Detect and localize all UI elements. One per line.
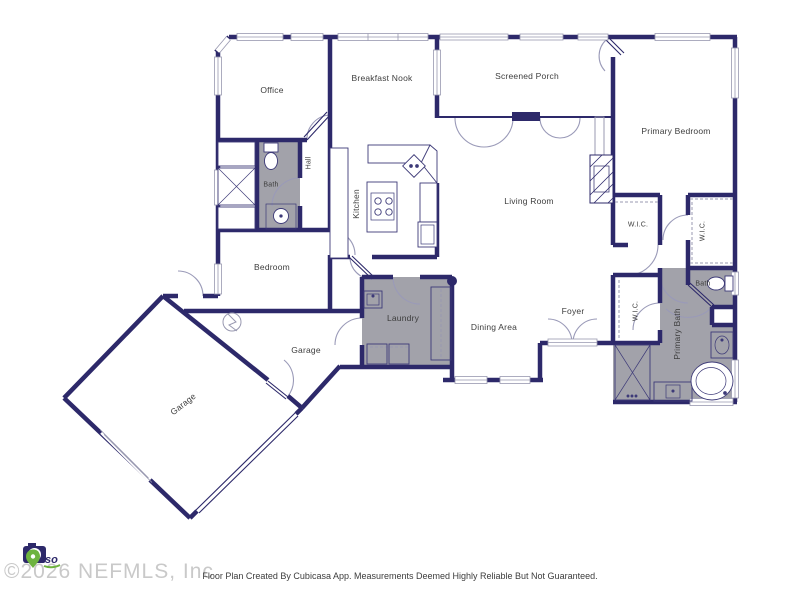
kitchen-island-icon xyxy=(367,182,397,232)
room-label-breakfast-nook: Breakfast Nook xyxy=(352,73,413,83)
room-label-garage-small: Garage xyxy=(291,345,321,355)
floorplan-page: Office Breakfast Nook Screened Porch Pri… xyxy=(0,0,800,600)
room-label-kitchen: Kitchen xyxy=(351,189,361,219)
room-label-office: Office xyxy=(260,85,283,95)
room-label-dining-area: Dining Area xyxy=(471,322,517,332)
screened-porch-wall xyxy=(437,112,613,121)
room-label-primary-bath: Primary Bath xyxy=(672,308,682,360)
logo-iso-text: iso xyxy=(42,554,58,566)
footer-disclaimer: Floor Plan Created By Cubicasa App. Meas… xyxy=(0,571,800,581)
room-label-screened-porch: Screened Porch xyxy=(495,71,559,81)
room-label-wic-3: W.I.C. xyxy=(633,301,640,321)
room-label-bedroom: Bedroom xyxy=(254,262,290,272)
room-label-wic-2: W.I.C. xyxy=(700,221,707,241)
room-label-living-room: Living Room xyxy=(504,196,553,206)
floorplan-drawing xyxy=(0,0,800,600)
wall-post xyxy=(447,276,457,286)
room-label-wic-1: W.I.C. xyxy=(628,222,648,229)
linen-closet xyxy=(712,307,733,325)
electrical-icon xyxy=(223,313,241,331)
fireplace-icon xyxy=(590,117,613,203)
toilet-icon xyxy=(708,276,734,291)
room-label-primary-bedroom: Primary Bedroom xyxy=(641,126,710,136)
room-label-bath: Bath xyxy=(263,182,278,189)
room-label-foyer: Foyer xyxy=(562,306,585,316)
room-label-bath-2: Bath xyxy=(695,281,710,288)
room-label-hall: Hall xyxy=(306,157,313,170)
room-label-laundry: Laundry xyxy=(387,313,419,323)
